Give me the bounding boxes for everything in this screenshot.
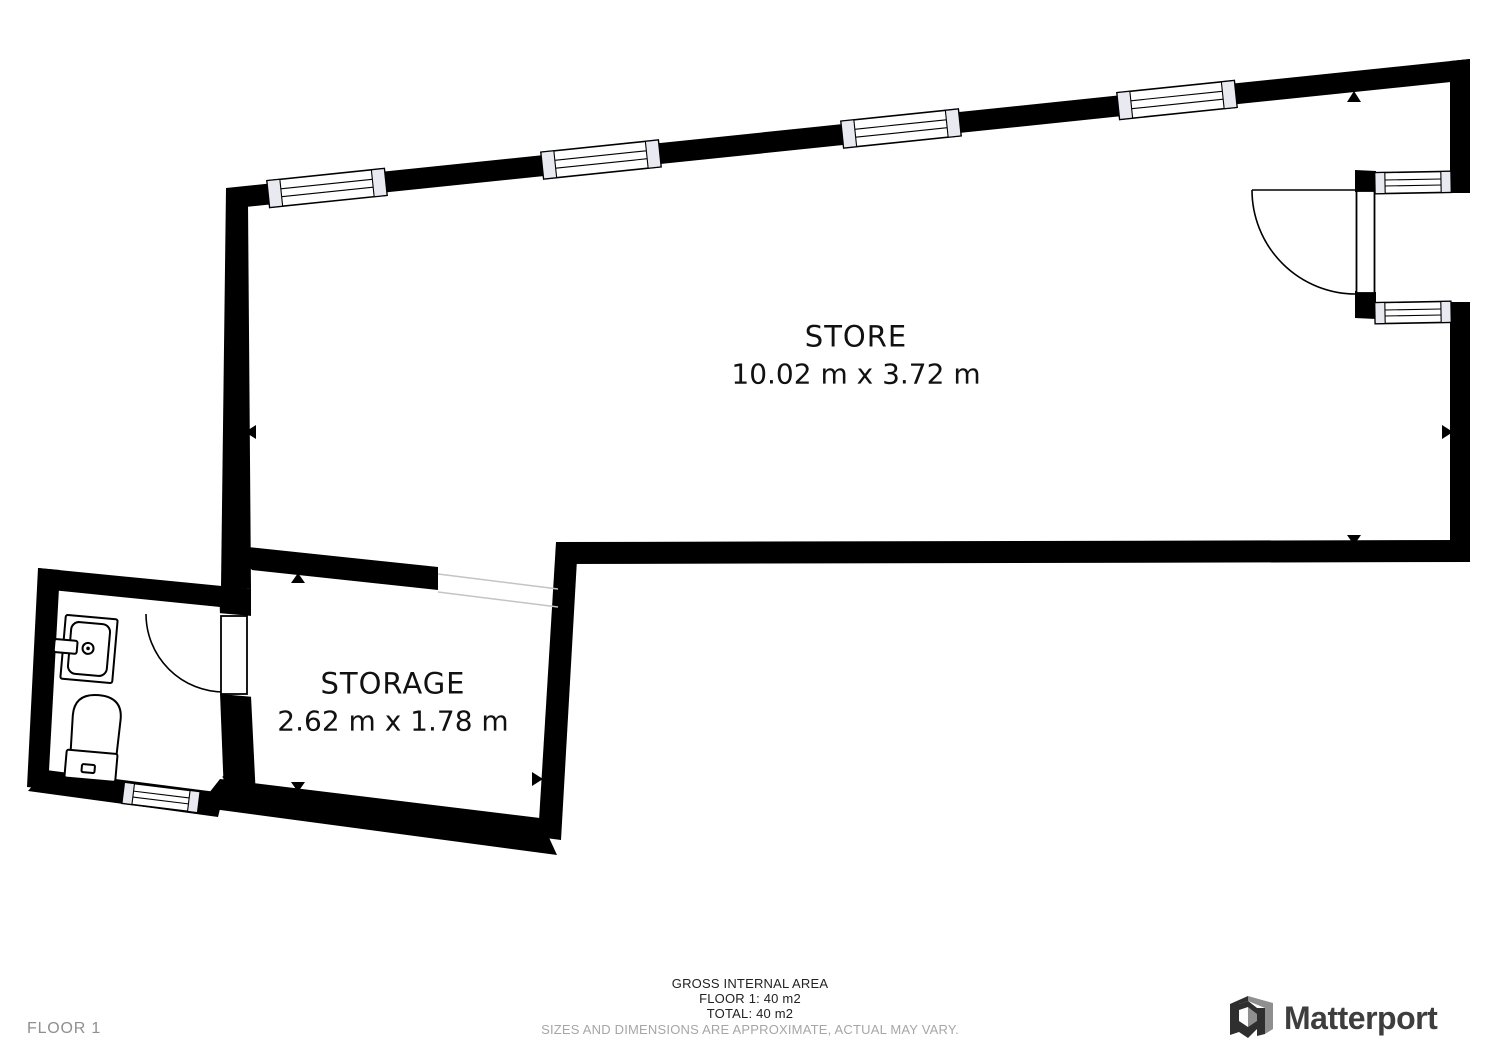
- window-icon: [267, 168, 387, 207]
- entry-door-jamb-bottom: [1355, 291, 1376, 319]
- window-icon: [1375, 301, 1451, 323]
- gross-internal-area-title: GROSS INTERNAL AREA: [0, 976, 1500, 991]
- floorplan-canvas: [0, 0, 1500, 1061]
- toilet-icon: [64, 693, 122, 782]
- matterport-logo-icon: [1228, 996, 1274, 1039]
- room-name: STORE: [731, 320, 980, 354]
- bathroom-door: [146, 613, 254, 697]
- brand-logo: Matterport: [1228, 996, 1437, 1039]
- floorplan-page: { "floorplan": { "rooms": [ { "name": "S…: [0, 0, 1500, 1061]
- entry-door: [1252, 190, 1375, 294]
- window-icon: [1375, 171, 1451, 193]
- store-left-wall: [221, 188, 251, 589]
- room-dimensions: 2.62 m x 1.78 m: [277, 705, 508, 738]
- store-right-wall-upper: [1450, 59, 1470, 193]
- window-icon: [541, 140, 661, 179]
- window-icon: [122, 782, 200, 812]
- storage-top-wall: [229, 545, 438, 590]
- room-label-storage: STORAGE 2.62 m x 1.78 m: [277, 667, 508, 738]
- bathroom-top-wall: [38, 568, 232, 608]
- brand-name: Matterport: [1284, 1000, 1437, 1037]
- storage-bottom-wall: [198, 779, 557, 855]
- room-name: STORAGE: [277, 667, 508, 701]
- dimension-arrow-up: [1347, 91, 1361, 102]
- walls: [27, 59, 1470, 855]
- entry-door-jamb-top: [1355, 170, 1376, 193]
- bathroom-door-leaf: [221, 616, 247, 694]
- bathroom-left-wall: [27, 568, 60, 789]
- sink-icon: [51, 614, 117, 683]
- floor-label: FLOOR 1: [27, 1020, 101, 1038]
- window-icon: [1117, 80, 1237, 119]
- entry-door-leaf: [1357, 191, 1375, 293]
- passage-opening: [438, 574, 558, 607]
- store-bottom-wall: [556, 540, 1470, 564]
- store-dimension-arrows: [245, 91, 1453, 545]
- room-dimensions: 10.02 m x 3.72 m: [731, 358, 980, 391]
- window-icon: [841, 109, 961, 148]
- room-label-store: STORE 10.02 m x 3.72 m: [731, 320, 980, 391]
